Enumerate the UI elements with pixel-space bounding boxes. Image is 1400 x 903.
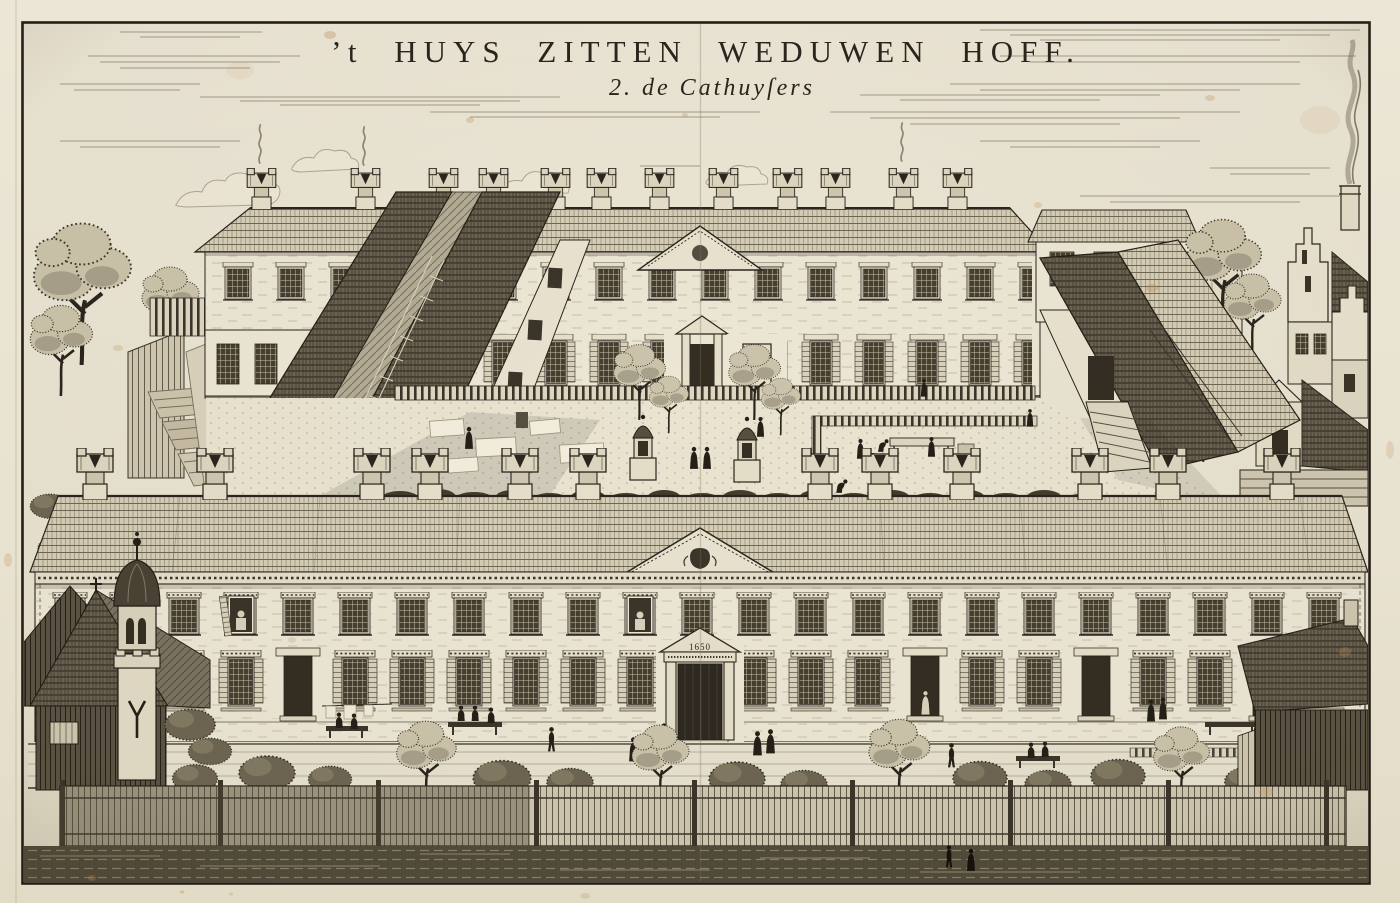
vignette — [24, 24, 1368, 882]
engraving-sheet: ’t HUYS ZITTEN WEDUWEN HOFF. 2. de Cathu… — [0, 0, 1400, 903]
engraving-print: ’t HUYS ZITTEN WEDUWEN HOFF. 2. de Cathu… — [0, 0, 1400, 903]
